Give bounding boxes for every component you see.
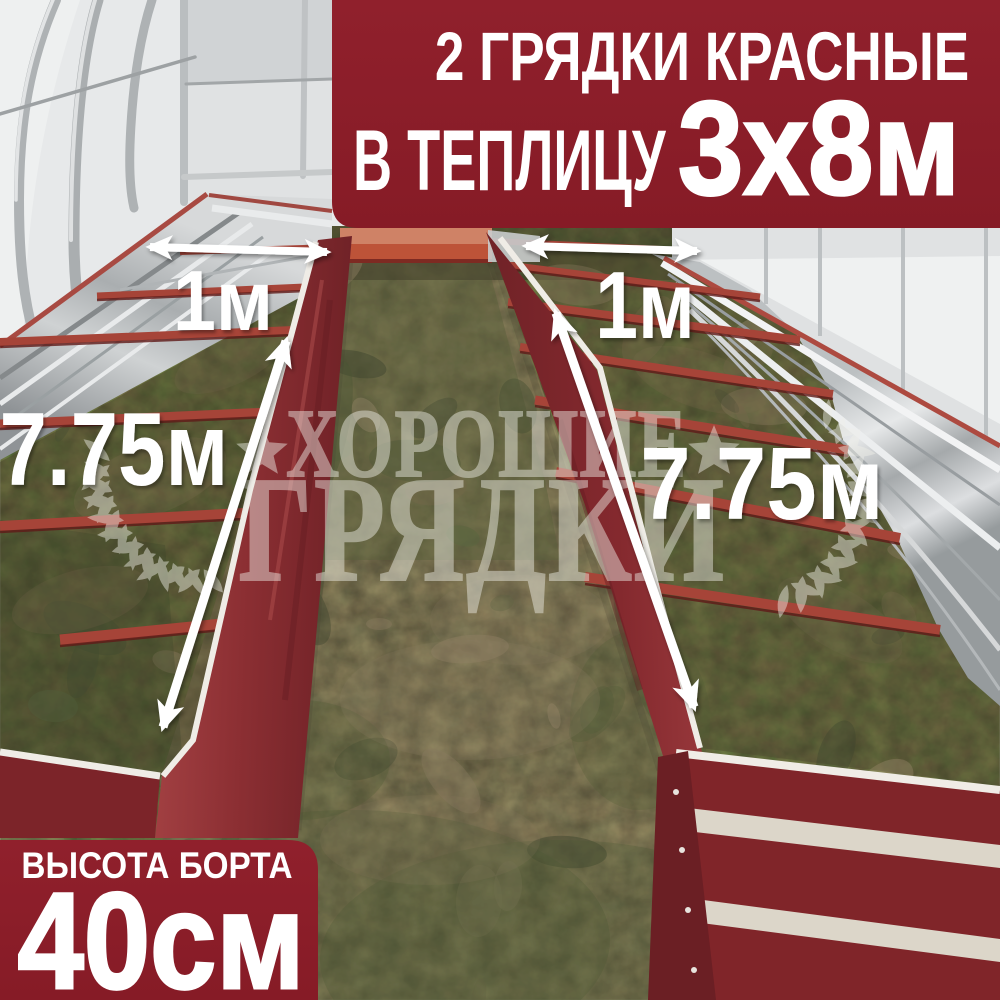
svg-text:1м: 1м (595, 252, 695, 359)
svg-text:7.75м: 7.75м (0, 392, 229, 508)
svg-text:В ТЕПЛИЦУ: В ТЕПЛИЦУ (353, 113, 667, 209)
svg-text:1м: 1м (173, 254, 273, 349)
svg-text:40см: 40см (17, 865, 304, 1000)
svg-text:3х8м: 3х8м (678, 74, 960, 223)
svg-text:7.75м: 7.75м (640, 426, 883, 542)
